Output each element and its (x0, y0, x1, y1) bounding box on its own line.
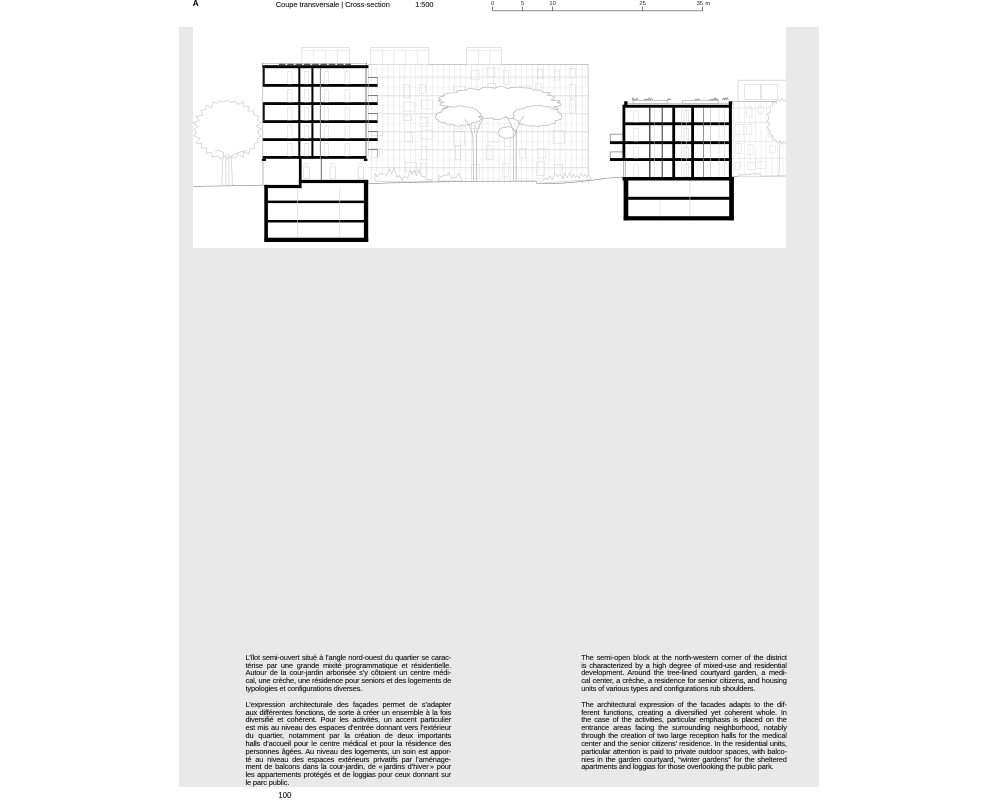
svg-text:5: 5 (521, 1, 524, 7)
svg-text:35: 35 (697, 1, 703, 7)
svg-text:10: 10 (549, 1, 555, 7)
svg-text:25: 25 (639, 1, 645, 7)
svg-text:0: 0 (491, 1, 494, 7)
svg-text:m: m (705, 1, 710, 7)
